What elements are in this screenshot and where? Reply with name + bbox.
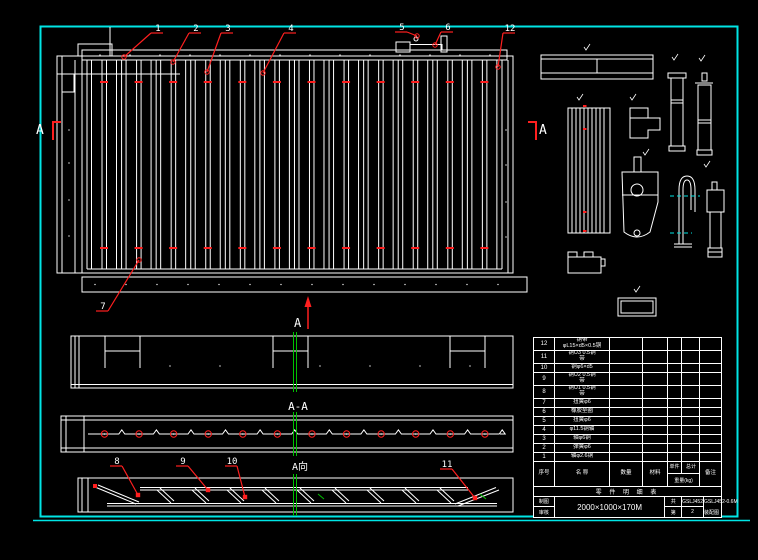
drawing-subtitle: 装配图	[704, 507, 721, 517]
drawing-number: GSLJ452-0.6M	[704, 497, 721, 507]
table-header: 序号 名 称 数量 材料 单件 总计 重量(kg) 备注	[534, 462, 721, 487]
table-row: 4 φ11.5铜轴	[534, 426, 721, 435]
callout-label: 12	[505, 24, 516, 34]
section-aa-view	[61, 412, 513, 456]
callout-label: 7	[100, 302, 105, 312]
callout-label: 9	[180, 457, 185, 467]
drawing-title: 2000×1000×170M	[555, 497, 666, 517]
main-view	[53, 27, 536, 329]
table-row: 10 铜φ6×d5	[534, 364, 721, 373]
col-note: 备注	[700, 462, 721, 486]
view-a-label: A向	[292, 460, 308, 473]
callout-label: 5	[399, 23, 404, 33]
col-qty: 数量	[610, 462, 643, 486]
table-row: 7 扭簧φ6	[534, 399, 721, 408]
table-row: 3 轴φ6铜	[534, 435, 721, 444]
callout-label: 6	[445, 23, 450, 33]
table-row: 9 铜U2 0.5铜带	[534, 373, 721, 386]
table-row: 2 弹簧φ6	[534, 444, 721, 453]
callout-label: 1	[155, 24, 160, 34]
drawn-label: 制图	[534, 497, 554, 507]
table-row: 11 铜U3 0.5铜带	[534, 351, 721, 364]
col-name: 名 称	[555, 462, 610, 486]
part-details	[541, 44, 724, 316]
callout-label: 4	[288, 24, 293, 34]
col-material: 材料	[643, 462, 668, 486]
title-block: 制图 审核 2000×1000×170M 共 第 GSLJ452 2 GSLJ4…	[534, 497, 721, 517]
table-row: 8 铜U1 0.5铜带	[534, 386, 721, 399]
callout-label: 2	[193, 24, 198, 34]
section-label-a-left: A	[36, 123, 44, 138]
view-a-direction	[78, 474, 513, 516]
view-arrow-label: A	[294, 316, 302, 330]
table-row: 5 扭簧φ6	[534, 417, 721, 426]
col-weight: 单件 总计 重量(kg)	[668, 462, 700, 486]
table-row: 1 轴φ2.6铜	[534, 453, 721, 462]
section-aa-label: A-A	[288, 400, 308, 413]
callout-label: 8	[114, 457, 119, 467]
col-no: 序号	[534, 462, 555, 486]
checked-label: 审核	[534, 507, 554, 517]
callout-label: 11	[442, 460, 453, 470]
side-view	[71, 332, 513, 392]
cad-sheet: 123456789101112 AAAA-AA向 12 铜带φL15×d5×0.…	[0, 0, 758, 560]
section-label-a-right: A	[539, 123, 547, 138]
callout-label: 10	[227, 457, 238, 467]
bom-table: 12 铜带φL15×d5×0.5铜 11 铜U3 0.5铜带 10 铜φ6×d5…	[533, 337, 722, 518]
table-row: 12 铜带φL15×d5×0.5铜	[534, 338, 721, 351]
parts-list-banner: 零 件 明 细 表	[534, 487, 721, 497]
table-row: 6 橡胶垫圈	[534, 408, 721, 417]
callout-label: 3	[225, 24, 230, 34]
